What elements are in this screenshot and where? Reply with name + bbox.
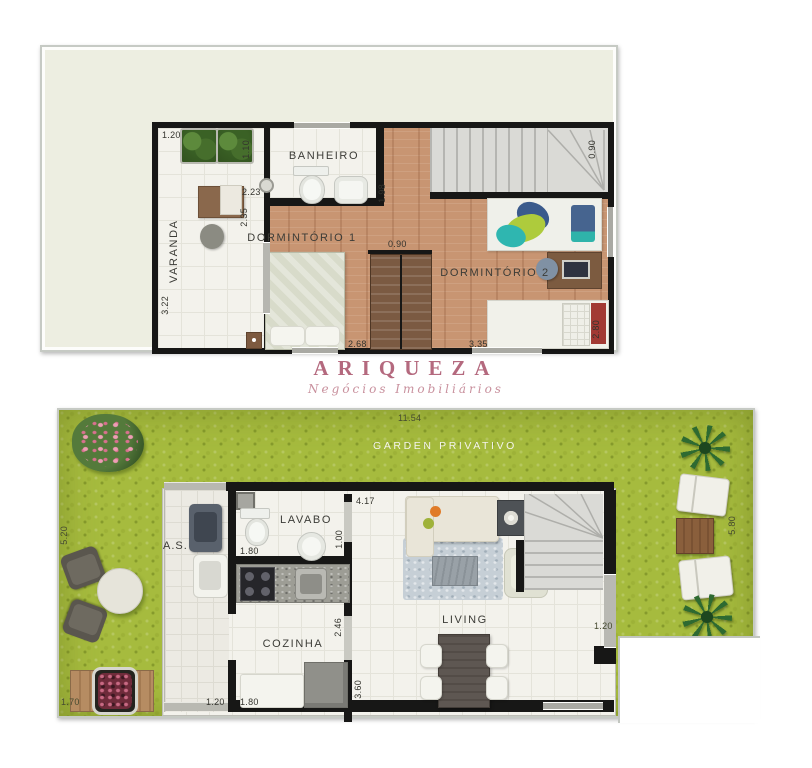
upper-floor-panel: VARANDA 1.20 3.22 BANHEIRO 1.10 2.23 1.9… — [40, 45, 618, 352]
varanda-chair — [200, 224, 224, 249]
dim-varanda-width: 1.20 — [162, 131, 181, 140]
garden-side-table — [676, 518, 714, 554]
entry-door — [604, 574, 616, 648]
panel-cutout — [618, 636, 760, 723]
ground-floor-panel: 11.54 GARDEN PRIVATIVO 5.20 1.70 — [57, 408, 755, 718]
stairs-winder-lines — [525, 494, 603, 540]
coffee-table — [432, 556, 478, 586]
dim-cozinha-width: 1.80 — [240, 698, 259, 707]
table-lamp-icon — [504, 511, 518, 525]
kitchen-sink-icon — [295, 568, 327, 600]
toilet-bowl-icon — [299, 175, 325, 204]
dim-lavabo-width: 1.80 — [240, 547, 259, 556]
brand-tagline: Negócios Imobiliários — [0, 382, 812, 396]
brand-logo: ARIQUEZA Negócios Imobiliários — [0, 356, 812, 396]
dining-chair — [420, 676, 442, 700]
brand-name: ARIQUEZA — [0, 356, 812, 381]
dining-chair — [486, 676, 508, 700]
room-label-living: LIVING — [415, 614, 515, 626]
stairs — [430, 128, 608, 192]
dim-garden-left-height: 5.20 — [60, 526, 69, 545]
sliding-door — [263, 242, 270, 314]
dorm1-window — [292, 347, 338, 354]
room-label-banheiro: BANHEIRO — [276, 150, 372, 162]
laundry-tank-icon — [193, 554, 228, 598]
pillow — [305, 326, 340, 346]
dim-dorm1-width: 2.68 — [348, 340, 367, 349]
dining-chair — [486, 644, 508, 668]
dim-living-width: 4.17 — [356, 497, 375, 506]
double-bed — [265, 252, 345, 350]
wall-as-divider-upper — [228, 490, 236, 614]
pillow — [270, 326, 305, 346]
living-window — [543, 702, 603, 710]
cushion-orange — [430, 506, 441, 517]
lounge-chair — [676, 473, 730, 517]
planter-spa — [92, 667, 138, 715]
room-label-lavabo: LAVABO — [256, 514, 356, 526]
room-label-cozinha: COZINHA — [243, 638, 343, 650]
dorm2-side-window — [607, 207, 614, 257]
dim-cozinha-height: 2.46 — [334, 618, 343, 637]
stairs-ground — [524, 494, 603, 590]
rose-bush-icon — [72, 414, 144, 472]
hedge-planter-icon — [180, 128, 218, 164]
room-label-dorm1: DORMINTÓRIO 1 — [237, 232, 367, 244]
cushion-green — [423, 518, 434, 529]
monitor-icon — [562, 260, 590, 279]
kitchen-cabinet — [304, 662, 348, 708]
garden-table — [97, 568, 143, 614]
bath-sink-icon — [334, 176, 368, 204]
sofa — [405, 496, 499, 542]
wall-wardrobe-top — [368, 250, 432, 254]
dim-as-width: 1.20 — [206, 698, 225, 707]
wall-top — [226, 482, 614, 491]
dim-banheiro-height: 1.98 — [378, 184, 387, 203]
banheiro-window — [294, 122, 350, 129]
room-label-varanda: VARANDA — [168, 203, 180, 299]
nightstand — [246, 332, 262, 349]
dim-dorm2-height: 2.80 — [592, 320, 601, 339]
dim-varanda-height: 3.22 — [161, 296, 170, 315]
pillow — [571, 205, 595, 242]
room-label-dorm2: DORMINTÓRIO 2 — [425, 267, 565, 279]
floorplan-sheet: VARANDA 1.20 3.22 BANHEIRO 1.10 2.23 1.9… — [0, 0, 812, 768]
palm-plant-icon — [682, 594, 732, 640]
wall-lavabo-bottom — [236, 556, 352, 564]
headboard-quilt — [562, 303, 590, 346]
stove-icon — [240, 567, 275, 601]
upper-floor-plan: VARANDA 1.20 3.22 BANHEIRO 1.10 2.23 1.9… — [152, 122, 614, 354]
service-area-sill — [164, 482, 228, 490]
single-bed-1 — [487, 198, 602, 251]
dim-lavabo-height: 1.00 — [335, 530, 344, 549]
dim-total-width: 11.54 — [398, 414, 421, 423]
dim-dorm1-door: 2.35 — [240, 208, 249, 227]
lavabo-sink-icon — [297, 532, 326, 561]
wall-stairs-left — [516, 540, 524, 592]
dim-garden-right-width: 1.20 — [594, 622, 613, 631]
dim-dorm2-width: 3.35 — [469, 340, 488, 349]
dim-stairs-width: 0.90 — [588, 140, 597, 159]
kitchen-counter — [236, 564, 350, 603]
room-label-as: A.S. — [163, 540, 211, 552]
dim-banheiro-door: 1.10 — [242, 140, 251, 159]
dim-closet-width: 0.90 — [388, 240, 407, 249]
palm-plant-icon — [680, 425, 730, 471]
dining-chair — [420, 644, 442, 668]
wardrobe — [370, 254, 432, 350]
dim-banheiro-width: 2.23 — [242, 188, 261, 197]
dim-garden-left-width: 1.70 — [61, 698, 80, 707]
dim-garden-right-height: 5.80 — [728, 516, 737, 535]
dining-table — [438, 634, 490, 708]
dim-living-height: 3.60 — [354, 680, 363, 699]
side-table — [497, 500, 525, 536]
wall-corner-pillar — [594, 646, 616, 664]
stairs-winder-lines — [548, 128, 608, 192]
garden-label: GARDEN PRIVATIVO — [355, 441, 535, 453]
wall-right — [604, 490, 616, 574]
shower-icon — [259, 178, 274, 193]
kitchen-door — [344, 616, 352, 660]
